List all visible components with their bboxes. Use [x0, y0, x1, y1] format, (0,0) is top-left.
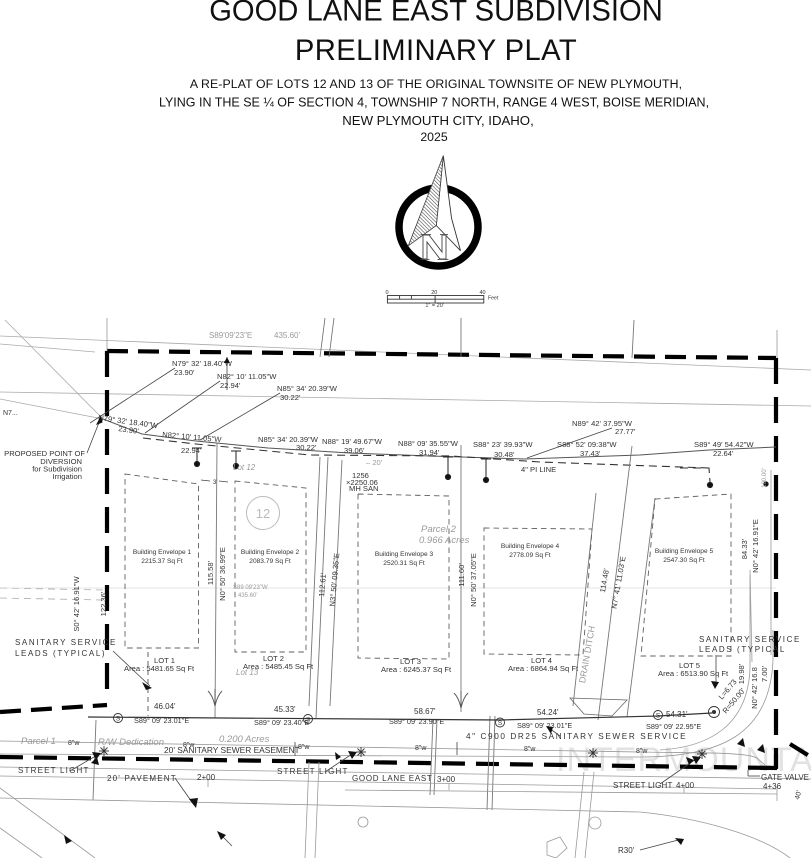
- svg-text:Area : 6245.37 Sq Ft: Area : 6245.37 Sq Ft: [381, 665, 452, 674]
- svg-text:Building Envelope 3: Building Envelope 3: [375, 551, 434, 558]
- svg-text:S: S: [498, 720, 503, 727]
- svg-text:Parcel 2: Parcel 2: [421, 524, 457, 535]
- svg-text:54.31': 54.31': [666, 710, 688, 719]
- svg-text:LEADS (TYPICAL): LEADS (TYPICAL): [15, 649, 106, 658]
- svg-text:Building Envelope 4: Building Envelope 4: [501, 543, 560, 550]
- svg-text:GATE VALVE: GATE VALVE: [761, 773, 809, 782]
- svg-text:4" PI LINE: 4" PI LINE: [521, 465, 556, 474]
- svg-text:S88° 23' 39.93"W: S88° 23' 39.93"W: [473, 440, 533, 449]
- svg-text:3': 3': [213, 480, 217, 486]
- svg-text:37.43': 37.43': [580, 449, 601, 458]
- svg-text:30.48': 30.48': [494, 450, 515, 459]
- svg-text:S: S: [656, 713, 661, 720]
- svg-text:Parcel 1: Parcel 1: [21, 736, 56, 747]
- svg-text:NEW PLYMOUTH CITY, IDAHO,: NEW PLYMOUTH CITY, IDAHO,: [342, 113, 533, 128]
- svg-text:2+00: 2+00: [197, 773, 216, 782]
- svg-text:58.67': 58.67': [414, 707, 436, 716]
- svg-text:27.77': 27.77': [615, 427, 636, 436]
- svg-text:S89° 09' 23.01"E: S89° 09' 23.01"E: [134, 716, 189, 725]
- svg-text:8"w: 8"w: [524, 746, 536, 753]
- svg-text:122.36': 122.36': [99, 591, 108, 616]
- svg-text:54.24': 54.24': [537, 708, 559, 717]
- svg-text:7.00': 7.00': [760, 665, 769, 682]
- svg-text:4" C900 DR25 SANITARY SEWER SE: 4" C900 DR25 SANITARY SEWER SERVICE: [466, 732, 687, 741]
- svg-text:8"w: 8"w: [298, 744, 310, 751]
- svg-text:SANITARY SERVICE: SANITARY SERVICE: [699, 635, 801, 644]
- svg-text:22.94': 22.94': [220, 381, 241, 390]
- svg-text:435.60': 435.60': [238, 593, 258, 599]
- svg-text:– 20': – 20': [366, 458, 383, 467]
- svg-text:46.04': 46.04': [154, 702, 176, 711]
- svg-text:20' PAVEMENT: 20' PAVEMENT: [107, 774, 177, 783]
- svg-text:Building Envelope 5: Building Envelope 5: [655, 548, 714, 555]
- svg-text:STREET LIGHT: STREET LIGHT: [277, 767, 349, 776]
- svg-text:Lot 12: Lot 12: [233, 463, 256, 472]
- svg-text:N7...: N7...: [3, 410, 18, 417]
- svg-text:N0° 42' 16.8: N0° 42' 16.8: [750, 667, 759, 709]
- svg-text:Feet: Feet: [488, 296, 499, 302]
- svg-text:3+00: 3+00: [437, 775, 456, 784]
- svg-text:S: S: [116, 716, 121, 723]
- svg-text:GOOD LANE EAST SUBDIVISION: GOOD LANE EAST SUBDIVISION: [209, 0, 663, 28]
- svg-text:Building Envelope 2: Building Envelope 2: [241, 549, 300, 556]
- svg-text:STREET LIGHT: STREET LIGHT: [613, 781, 673, 790]
- svg-text:Building Envelope 1: Building Envelope 1: [133, 549, 192, 556]
- svg-text:N79° 32' 18.40"W: N79° 32' 18.40"W: [172, 359, 233, 368]
- svg-text:23.90': 23.90': [174, 368, 195, 377]
- svg-text:S89'09'23"E: S89'09'23"E: [209, 331, 252, 340]
- svg-text:100.00': 100.00': [762, 468, 768, 488]
- svg-text:LEADS (TYPICAL: LEADS (TYPICAL: [699, 645, 786, 654]
- svg-text:S89° 49' 54.42"W: S89° 49' 54.42"W: [694, 440, 754, 449]
- svg-text:12: 12: [256, 506, 270, 521]
- svg-text:Area : 6864.94 Sq Ft: Area : 6864.94 Sq Ft: [508, 664, 579, 673]
- svg-text:435.60': 435.60': [274, 331, 300, 340]
- svg-text:Area : 5485.45 Sq Ft: Area : 5485.45 Sq Ft: [243, 662, 314, 671]
- svg-text:8"w: 8"w: [415, 745, 427, 752]
- svg-text:111.60': 111.60': [457, 563, 466, 587]
- svg-text:N0° 50' 36.99"E: N0° 50' 36.99"E: [218, 547, 227, 601]
- svg-text:STREET LIGHT: STREET LIGHT: [18, 766, 90, 775]
- svg-text:8"w: 8"w: [183, 742, 195, 749]
- svg-text:84.33': 84.33': [740, 538, 749, 559]
- svg-text:2520.31 Sq Ft: 2520.31 Sq Ft: [383, 560, 425, 567]
- svg-text:N88° 19' 49.67"W: N88° 19' 49.67"W: [322, 437, 383, 446]
- svg-text:S89° 09' 23.90"E: S89° 09' 23.90"E: [389, 717, 444, 726]
- svg-text:R30': R30': [618, 846, 635, 855]
- svg-text:GOOD LANE EAST: GOOD LANE EAST: [352, 774, 432, 783]
- svg-text:Area : 6513.90 Sq Ft: Area : 6513.90 Sq Ft: [658, 669, 729, 678]
- svg-text:A RE-PLAT OF LOTS 12 AND 13 OF: A RE-PLAT OF LOTS 12 AND 13 OF THE ORIGI…: [190, 77, 682, 91]
- svg-text:2547.30 Sq Ft: 2547.30 Sq Ft: [663, 557, 705, 564]
- svg-text:2025: 2025: [420, 130, 448, 144]
- svg-text:115.58': 115.58': [206, 560, 215, 585]
- svg-text:N82° 10' 11.05"W: N82° 10' 11.05"W: [217, 372, 277, 381]
- svg-text:39.06': 39.06': [344, 446, 365, 455]
- svg-text:20: 20: [431, 290, 437, 296]
- svg-text:2083.79 Sq Ft: 2083.79 Sq Ft: [249, 558, 291, 565]
- svg-text:4+00: 4+00: [676, 781, 695, 790]
- svg-text:0.200 Acres: 0.200 Acres: [219, 734, 270, 745]
- svg-text:1" = 20': 1" = 20': [425, 303, 443, 309]
- svg-text:8"w: 8"w: [68, 740, 80, 747]
- svg-text:22.64': 22.64': [713, 449, 734, 458]
- svg-text:4+36: 4+36: [763, 782, 782, 791]
- svg-text:40: 40: [479, 290, 485, 296]
- svg-text:PRELIMINARY PLAT: PRELIMINARY PLAT: [295, 35, 577, 67]
- svg-text:0.966 Acres: 0.966 Acres: [419, 535, 470, 546]
- svg-text:S89° 09' 22.95"E: S89° 09' 22.95"E: [646, 722, 701, 731]
- svg-text:Irrigation: Irrigation: [52, 472, 82, 481]
- svg-text:2778.09 Sq Ft: 2778.09 Sq Ft: [509, 552, 551, 559]
- svg-text:N85° 34' 20.39"W: N85° 34' 20.39"W: [277, 384, 338, 393]
- svg-text:2215.37 Sq Ft: 2215.37 Sq Ft: [141, 558, 183, 565]
- svg-text:S89° 09' 23.01"E: S89° 09' 23.01"E: [517, 721, 572, 730]
- svg-text:S89° 09' 23.40"E: S89° 09' 23.40"E: [254, 718, 309, 727]
- svg-text:45.33': 45.33': [274, 705, 296, 714]
- svg-text:31.94': 31.94': [419, 448, 440, 457]
- svg-text:S89 09'23"W: S89 09'23"W: [233, 585, 268, 591]
- svg-text:SANITARY SERVICE: SANITARY SERVICE: [15, 638, 117, 647]
- svg-text:N0° 50' 37.05"E: N0° 50' 37.05"E: [469, 553, 478, 607]
- svg-text:S0° 42' 16.91"W: S0° 42' 16.91"W: [72, 576, 81, 632]
- svg-text:N0° 42' 16.91"E: N0° 42' 16.91"E: [751, 519, 760, 573]
- svg-text:LYING IN THE SE ¼ OF SECTION 4: LYING IN THE SE ¼ OF SECTION 4, TOWNSHIP…: [159, 96, 709, 110]
- svg-text:22.94': 22.94': [181, 446, 202, 455]
- svg-text:N88° 09' 35.55"W: N88° 09' 35.55"W: [398, 439, 459, 448]
- svg-text:MH SAN: MH SAN: [349, 484, 379, 493]
- svg-text:0: 0: [385, 290, 388, 296]
- svg-text:8"w: 8"w: [636, 748, 648, 755]
- svg-text:R/W Dedication: R/W Dedication: [98, 737, 164, 748]
- svg-text:19.98': 19.98': [737, 663, 746, 684]
- svg-text:30.22': 30.22': [296, 443, 317, 452]
- svg-text:30.22': 30.22': [280, 393, 301, 402]
